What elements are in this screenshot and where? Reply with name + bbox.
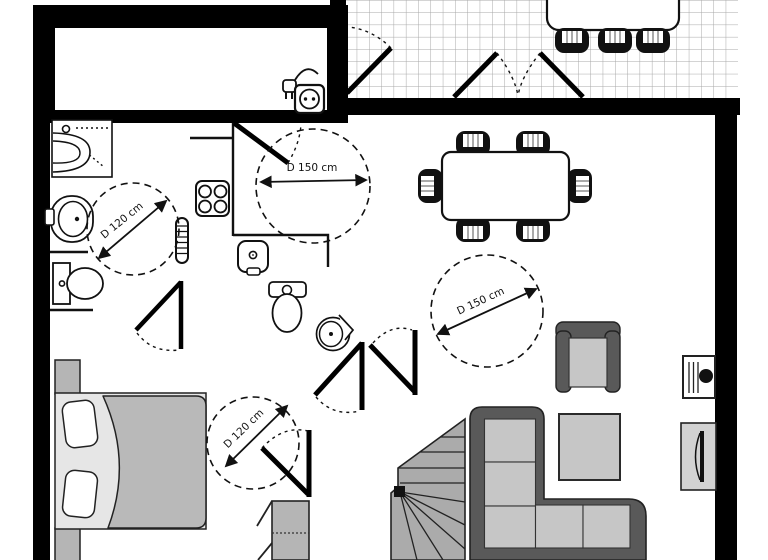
terrace-table (547, 0, 679, 30)
towel-radiator-icon (176, 218, 188, 263)
terrace (346, 0, 738, 98)
heater-unit-icon (683, 356, 715, 398)
nightstand (55, 528, 80, 560)
floor-plan: D 150 cm D 150 cm D 120 cm D 120 cm (0, 0, 768, 560)
double-bed (55, 393, 206, 529)
wall-left (33, 5, 50, 560)
dining-chair-icon (418, 169, 443, 203)
small-sink-icon (238, 241, 268, 275)
terrace-chair-icon (555, 28, 589, 53)
armchair (556, 322, 620, 392)
coffee-table (559, 414, 620, 480)
terrace-chair-icon (636, 28, 670, 53)
dining-table (442, 152, 569, 220)
pillow (61, 399, 98, 449)
armchair-seat (569, 338, 607, 387)
pillow (62, 469, 99, 518)
dining-chair-icon (567, 169, 592, 203)
stove-icon (196, 181, 229, 216)
nightstand (55, 360, 80, 394)
dimension-label: D 150 cm (287, 162, 338, 174)
stairs-newel (394, 486, 405, 497)
terrace-chairs (555, 28, 670, 53)
wall-right (715, 98, 737, 560)
terrace-chair-icon (598, 28, 632, 53)
wall-terrace-left (330, 0, 346, 98)
tv-cabinet (681, 423, 716, 490)
wall-terrace-bottom (330, 98, 740, 115)
shower-icon (52, 120, 112, 177)
